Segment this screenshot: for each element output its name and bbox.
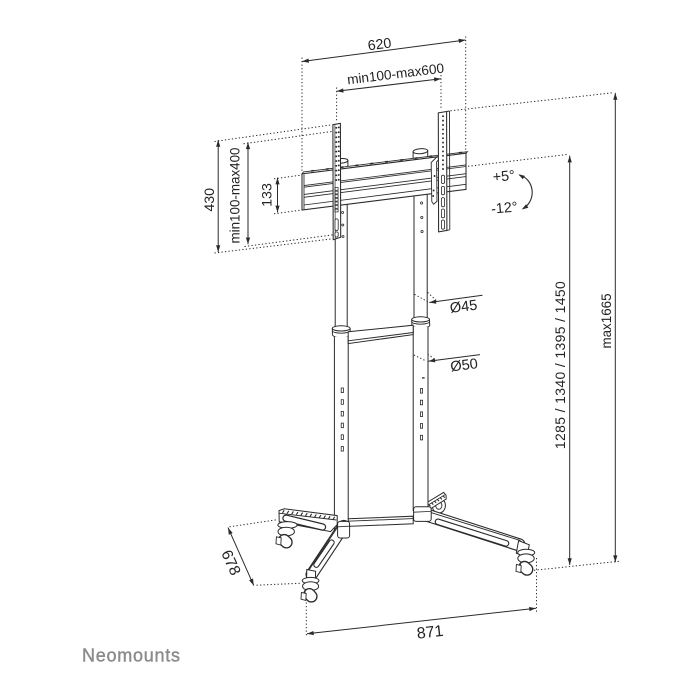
svg-text:max1665: max1665 [599, 293, 614, 348]
svg-text:1285 / 1340 / 1395 / 1450: 1285 / 1340 / 1395 / 1450 [552, 281, 568, 449]
svg-text:Ø45: Ø45 [449, 298, 478, 317]
svg-text:-12°: -12° [490, 199, 518, 217]
svg-text:430: 430 [202, 188, 218, 212]
svg-text:Neomounts: Neomounts [82, 645, 181, 665]
svg-text:min100-max400: min100-max400 [227, 147, 242, 243]
svg-text:133: 133 [260, 183, 276, 207]
svg-text:Ø50: Ø50 [449, 356, 478, 375]
svg-text:+5°: +5° [492, 168, 515, 186]
svg-text:871: 871 [416, 623, 445, 643]
svg-text:620: 620 [367, 35, 393, 54]
